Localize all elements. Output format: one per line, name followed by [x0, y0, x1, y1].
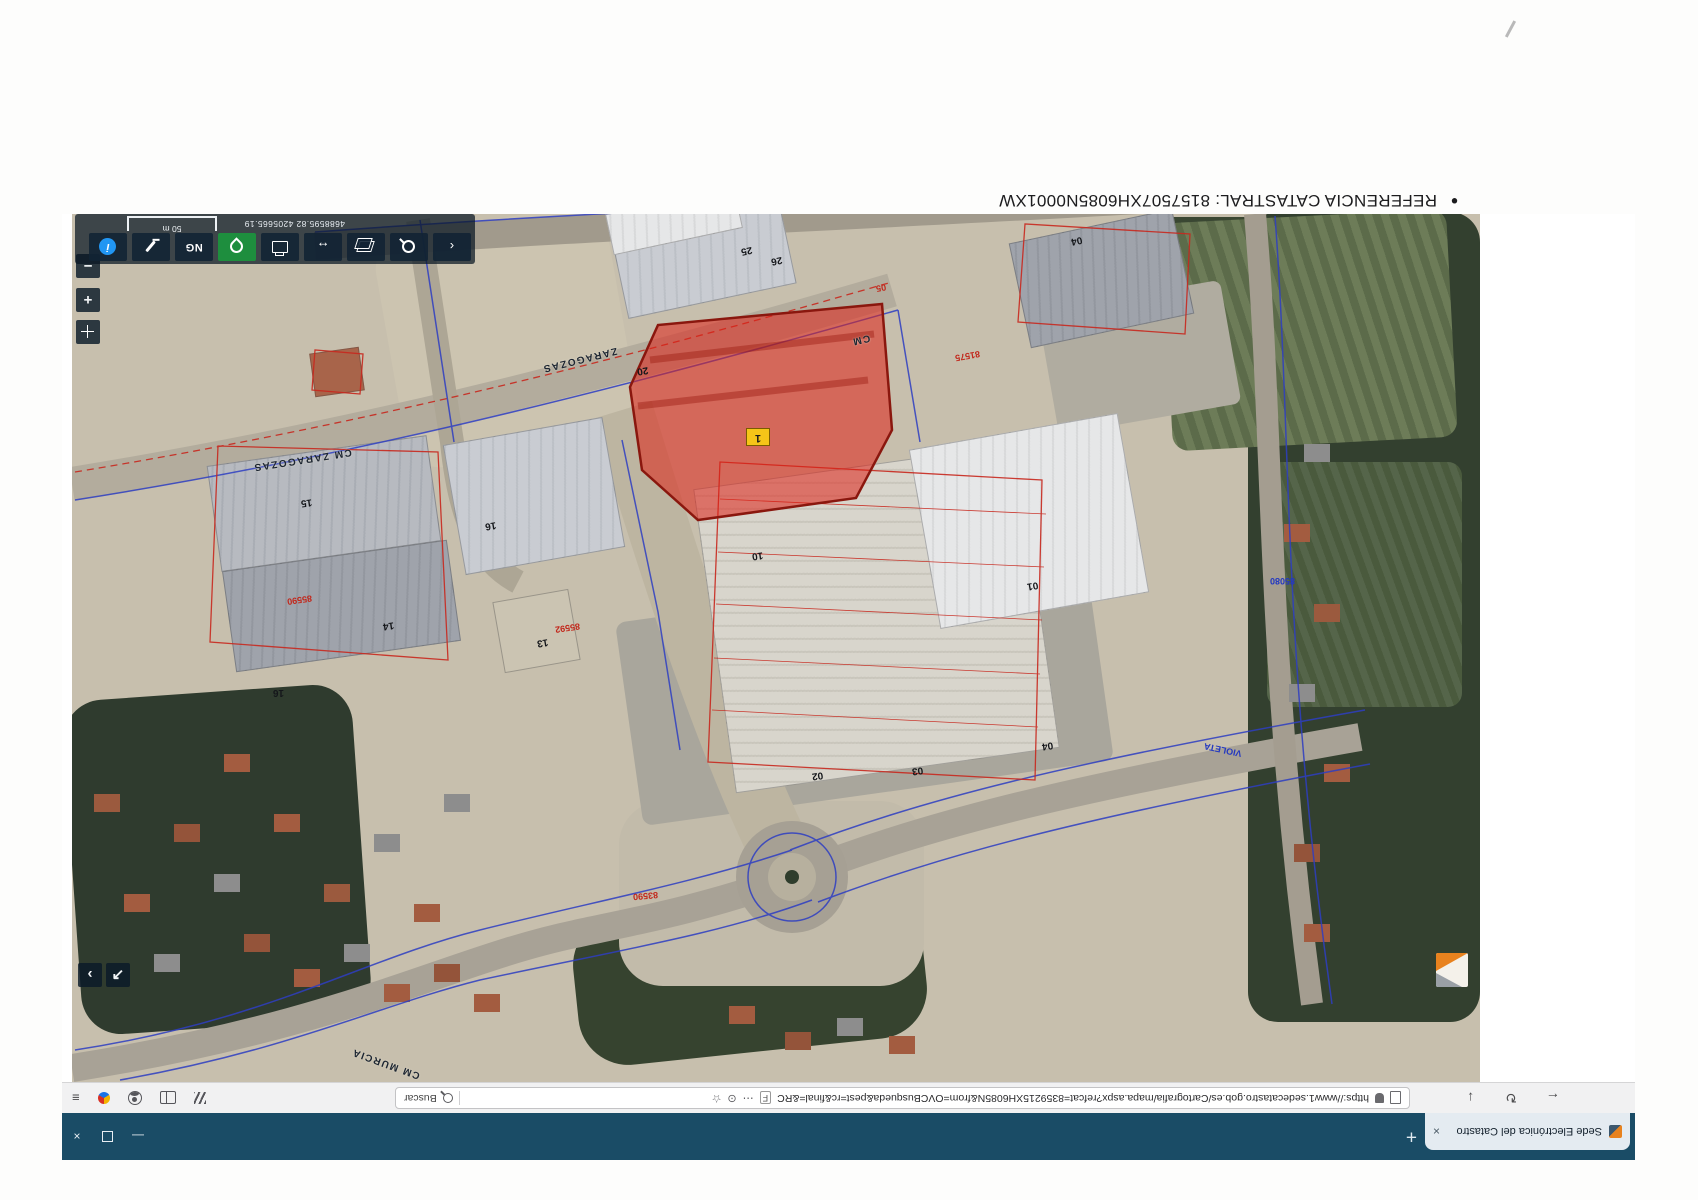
lot-number-label: 20: [636, 364, 649, 376]
f-badge-icon[interactable]: F: [760, 1092, 772, 1105]
close-button[interactable]: ×: [68, 1130, 86, 1144]
cadastral-map[interactable]: 1 CM ZARAGOZAS ZARAGOZAS CM CM MURCIA VI…: [72, 214, 1480, 1082]
parcel-ref-label: 05: [875, 282, 886, 293]
reference-heading: • REFERENCIA CATASTRAL: 8157507XH6085N00…: [999, 190, 1458, 210]
browser-window: Sede Electrónica del Catastro × + — × ← …: [62, 215, 1635, 1160]
back-button[interactable]: ←: [1546, 1088, 1560, 1108]
info-icon: i: [100, 239, 117, 256]
parcel-number-badge: 1: [746, 428, 770, 446]
select-parcel-button[interactable]: [218, 233, 256, 261]
lot-number-label: 16: [273, 687, 284, 697]
printer-icon: [272, 241, 288, 253]
window-controls: — ×: [68, 1113, 147, 1160]
menu-icon[interactable]: ≡: [72, 1092, 80, 1105]
catastro-favicon-icon: [1609, 1125, 1622, 1138]
target-icon[interactable]: ⊙: [727, 1093, 736, 1104]
layers-icon: [357, 242, 376, 253]
parcel-ref-label: 85080: [1270, 576, 1295, 585]
catastral-reference-text: REFERENCIA CATASTRAL: 8157507XH6085N0001…: [999, 190, 1437, 210]
magnifier-icon: [403, 241, 416, 254]
map-toolbar-panel: ‹ ↔ NG i 4688595.82 4205665.19 50 m: [75, 214, 475, 264]
rotated-scan-content: • REFERENCIA CATASTRAL: 8157507XH6085N00…: [0, 0, 1698, 1200]
scan-artifact: [1505, 20, 1516, 37]
collections-icon[interactable]: [194, 1092, 206, 1104]
browser-tab-bar: Sede Electrónica del Catastro × + — ×: [62, 1113, 1635, 1160]
scale-label: 50 m: [129, 224, 215, 234]
lot-number-label: 13: [536, 636, 549, 648]
more-options-icon[interactable]: ⋯: [743, 1093, 754, 1104]
new-tab-button[interactable]: +: [1406, 1127, 1417, 1146]
catastro-logo: [1436, 953, 1468, 987]
lot-number-label: 04: [1041, 739, 1053, 750]
tab-close-icon[interactable]: ×: [1433, 1125, 1440, 1139]
downloads-button[interactable]: ↓: [1467, 1088, 1474, 1108]
toolbar-right-icons: ≡: [72, 1087, 206, 1109]
lot-number-label: 25: [740, 244, 753, 256]
layers-button[interactable]: [347, 233, 385, 261]
site-security-icon[interactable]: [1375, 1093, 1384, 1103]
minimize-button[interactable]: —: [129, 1130, 147, 1144]
lot-number-label: 04: [1070, 234, 1083, 246]
search-icon[interactable]: [443, 1093, 453, 1103]
lot-number-label: 03: [911, 764, 923, 775]
address-separator: [459, 1091, 460, 1105]
map-toolbar: ‹ ↔ NG i: [89, 233, 471, 261]
pan-crosshair-button[interactable]: [76, 320, 100, 344]
cadastral-lines-layer: [72, 214, 1480, 1082]
info-button[interactable]: i: [89, 233, 127, 261]
search-label[interactable]: Buscar: [404, 1092, 437, 1104]
favorite-star-icon[interactable]: ☆: [712, 1093, 722, 1104]
url-text[interactable]: https://www1.sedecatastro.gob.es/Cartogr…: [777, 1092, 1369, 1104]
measure-button[interactable]: ↔: [304, 233, 342, 261]
browser-toolbar: ← ↻ ↓ https://www1.sedecatastro.gob.es/C…: [62, 1082, 1635, 1113]
lot-number-label: 10: [751, 549, 763, 560]
lot-number-label: 01: [1026, 579, 1039, 591]
tab-title: Sede Electrónica del Catastro: [1447, 1126, 1602, 1138]
crosshair-icon: [82, 326, 95, 339]
collapse-panel-button[interactable]: ›: [78, 963, 102, 987]
lot-number-label: 15: [300, 496, 312, 507]
address-bar[interactable]: https://www1.sedecatastro.gob.es/Cartogr…: [395, 1087, 1410, 1109]
browser-viewport: 1 CM ZARAGOZAS ZARAGOZAS CM CM MURCIA VI…: [62, 214, 1635, 1082]
tab-sede-electronica[interactable]: Sede Electrónica del Catastro ×: [1425, 1113, 1630, 1150]
extensions-icon[interactable]: [98, 1092, 110, 1104]
lot-number-label: 26: [770, 254, 783, 266]
map-pin-icon: [228, 238, 246, 256]
draw-button[interactable]: [132, 233, 170, 261]
scanned-page: • REFERENCIA CATASTRAL: 8157507XH6085N00…: [0, 0, 1698, 1200]
parcel-ref-label: 83590: [633, 890, 659, 901]
zoom-in-button[interactable]: +: [76, 288, 100, 312]
profile-icon[interactable]: [128, 1091, 142, 1105]
expand-map-button[interactable]: ↗: [106, 963, 130, 987]
collapse-toolbar-button[interactable]: ‹: [433, 233, 471, 261]
lot-number-label: 14: [382, 619, 394, 630]
pen-icon: [146, 241, 156, 253]
scale-bar: 50 m: [127, 216, 217, 231]
page-info-icon[interactable]: [1390, 1092, 1401, 1105]
bullet-icon: •: [1451, 190, 1458, 210]
ng-label: NG: [185, 241, 203, 253]
lot-number-label: 16: [484, 519, 497, 531]
maximize-button[interactable]: [102, 1131, 113, 1142]
coordinates-readout: 4688595.82 4205665.19: [244, 219, 345, 229]
split-screen-icon[interactable]: [160, 1092, 176, 1105]
print-button[interactable]: [261, 233, 299, 261]
zoom-search-button[interactable]: [390, 233, 428, 261]
ng-toggle-button[interactable]: NG: [175, 233, 213, 261]
reload-button[interactable]: ↻: [1505, 1088, 1517, 1108]
lot-number-label: 02: [811, 769, 823, 780]
